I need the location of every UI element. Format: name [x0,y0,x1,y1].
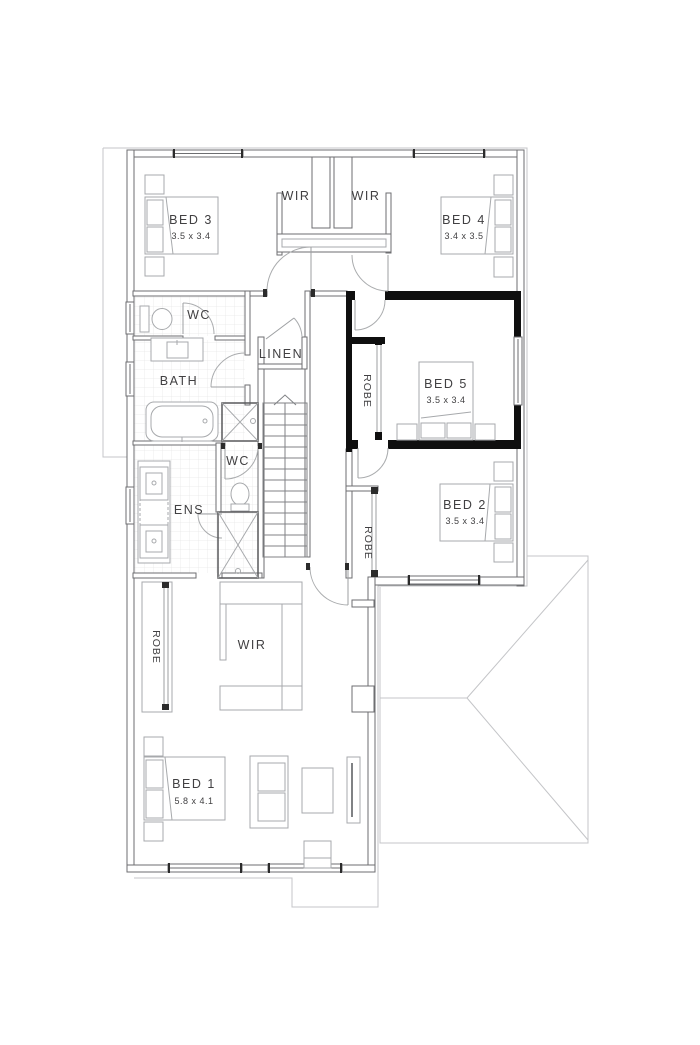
window [413,149,485,158]
lower-roof-outline [380,556,588,843]
bed3-dims: 3.5 x 3.4 [171,231,210,241]
bathtub-icon [146,402,218,442]
linen-label: LINEN [259,347,303,361]
tv-icon [347,757,360,823]
bed5-dims: 3.5 x 3.4 [426,395,465,405]
bed1-label: BED 1 [172,777,216,791]
robe-bed2-label: ROBE [362,526,374,560]
bed4-dims: 3.4 x 3.5 [444,231,483,241]
wc-ens-label: WC [226,454,250,468]
stairs [263,395,307,557]
window [126,487,134,524]
bed4-label: BED 4 [442,213,486,227]
vanity-icon [151,338,203,361]
wir-master-label: WIR [238,638,267,652]
double-vanity-icon [138,461,170,563]
door-arc [352,255,388,291]
door-arc [310,567,348,605]
window [173,149,243,158]
bed2-dims: 3.5 x 3.4 [445,516,484,526]
bed1-dims: 5.8 x 4.1 [174,796,213,806]
window [126,302,134,334]
window [126,362,134,396]
side-table-icon [304,841,331,868]
toilet-icon [231,483,249,511]
door-arc [358,448,388,478]
bed2-label: BED 2 [443,498,487,512]
ens-label: ENS [174,503,204,517]
armchair-icon [302,768,333,813]
window [168,863,242,873]
floor-plan: BED 3 3.5 x 3.4 BED 4 3.4 x 3.5 BED 5 3.… [0,0,700,1045]
door-arc [355,300,385,330]
window [408,575,480,585]
sofa-icon [250,756,288,828]
robe-bed5-label: ROBE [361,374,373,408]
bed5-label: BED 5 [424,377,468,391]
eave-outline-left [103,148,127,457]
floor-plan-drawing: BED 3 3.5 x 3.4 BED 4 3.4 x 3.5 BED 5 3.… [0,0,700,1045]
linen-door [266,318,302,339]
bath-label: BATH [160,374,198,388]
robe-bed1-label: ROBE [150,630,162,664]
wir-top-left-label: WIR [282,189,311,203]
robe-sliding-door-track [377,345,381,432]
bed3-label: BED 3 [169,213,213,227]
wir-top-right-label: WIR [352,189,381,203]
bed-icon [440,462,513,562]
window [514,337,522,405]
roof-ridge-lines [380,560,588,840]
door-arc [267,247,311,291]
wc-upper-label: WC [187,308,211,322]
